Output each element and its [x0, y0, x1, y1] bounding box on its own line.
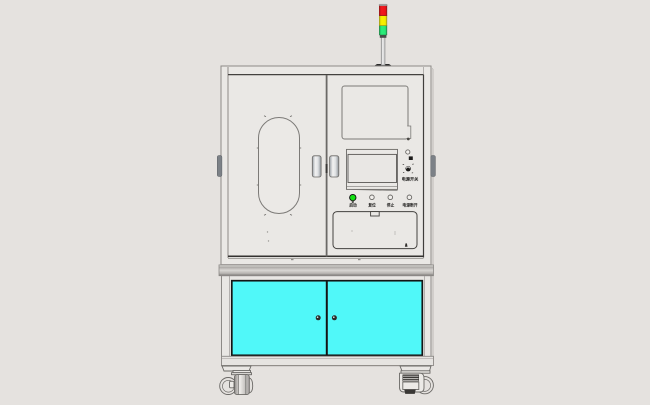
svg-text:复位: 复位 [368, 203, 376, 208]
svg-text:电源开关: 电源开关 [402, 176, 420, 183]
svg-text:启动: 启动 [349, 203, 357, 208]
svg-text:电源断开: 电源断开 [402, 203, 417, 208]
svg-text:停止: 停止 [387, 203, 395, 208]
